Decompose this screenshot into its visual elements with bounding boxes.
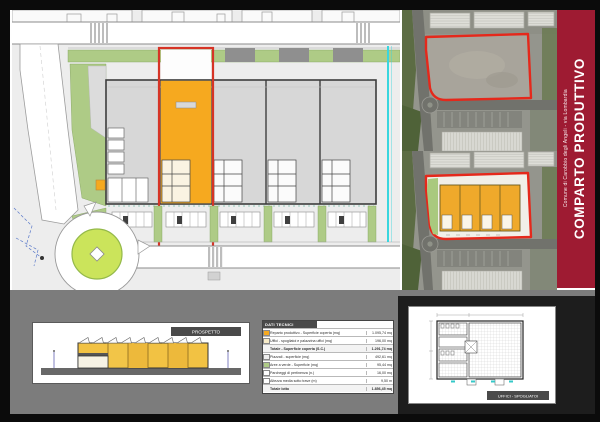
elevation-label: PROSPETTO xyxy=(192,330,221,335)
banner-title: COMPARTO PRODUTTIVO xyxy=(570,58,590,239)
ground-slab xyxy=(41,368,241,375)
vacant-lot xyxy=(426,34,531,100)
loading-aprons xyxy=(225,48,363,62)
sawtooth-roof xyxy=(79,338,202,344)
stair-core xyxy=(465,341,477,353)
swatch-verde xyxy=(263,362,270,368)
title-banner: Comune di Carobbio degli Angeli - via Lo… xyxy=(557,10,595,288)
row-label: Totale - Superficie coperta (S.C.) xyxy=(270,347,366,351)
light-pole-right-icon xyxy=(227,350,229,368)
row-value: 1.856,45 mq xyxy=(366,387,393,391)
elevation-card: PROSPETTO xyxy=(32,322,250,384)
swatch-none xyxy=(263,346,270,352)
project-building xyxy=(440,185,520,231)
row-value: 1.291,74 mq xyxy=(366,347,393,351)
swatch-piazzali xyxy=(263,354,270,360)
sheet-page: Comune di Carobbio degli Angeli - via Lo… xyxy=(10,10,595,414)
site-plan-drawing xyxy=(12,10,400,290)
building-elevation xyxy=(78,338,208,369)
site-data-table: DATI TECNICI Reparto produttivo - Superf… xyxy=(262,320,394,394)
row-value: 196,00 mq xyxy=(366,339,393,343)
unit-tag xyxy=(176,102,196,108)
table-row: Piazzali - superficie (mq) 492,61 mq xyxy=(263,352,393,360)
plan-walls xyxy=(437,321,523,385)
table-header: DATI TECNICI xyxy=(263,321,317,328)
row-label: Altezza media sotto trave (m) xyxy=(270,379,366,383)
table-row: Uffici - spogliatoi e palazzina uffici (… xyxy=(263,336,393,344)
row-label: Uffici - spogliatoi e palazzina uffici (… xyxy=(270,339,366,343)
project-lot xyxy=(426,173,531,239)
swatch-altezza xyxy=(263,378,270,384)
parking-lot xyxy=(437,111,522,128)
floorplan-card: UFFICI - SPOGLIATOI xyxy=(408,306,556,404)
swatch-none xyxy=(263,386,270,392)
south-building xyxy=(442,132,522,151)
existing-buildings-north xyxy=(12,10,400,22)
aerial-photo-project xyxy=(402,151,557,290)
swatch-parcheggi xyxy=(263,370,270,376)
row-value: 492,61 mq xyxy=(366,355,393,359)
annex-elevation xyxy=(78,353,108,368)
aerial-photo-existing xyxy=(402,10,557,151)
parking-lot xyxy=(437,250,522,267)
swatch-produttivo xyxy=(263,330,270,336)
table-row: Altezza media sotto trave (m) 9,50 m xyxy=(263,376,393,384)
row-label: Parcheggi di pertinenza (n.) xyxy=(270,371,366,375)
row-value: 16,00 mq xyxy=(366,371,393,375)
banner-subtitle: Comune di Carobbio degli Angeli - via Lo… xyxy=(562,58,570,239)
elevation-drawing: PROSPETTO xyxy=(33,323,249,383)
light-pole-left-icon xyxy=(53,350,55,368)
table-row: Reparto produttivo - Superficie coperta … xyxy=(263,328,393,336)
industrial-roofs xyxy=(430,152,554,168)
industrial-roofs xyxy=(430,12,554,28)
floor-plan-drawing: UFFICI - SPOGLIATOI xyxy=(409,307,555,403)
row-value: 95,44 mq xyxy=(366,363,393,367)
row-label: Totale lotto xyxy=(270,387,366,391)
row-label: Reparto produttivo - Superficie coperta … xyxy=(270,331,366,335)
row-value: 9,50 m xyxy=(366,379,393,383)
swatch-uffici xyxy=(263,338,270,344)
south-building xyxy=(442,271,522,290)
row-label: Aree a verde - Superficie (mq) xyxy=(270,363,366,367)
table-row: Aree a verde - Superficie (mq) 95,44 mq xyxy=(263,360,393,368)
table-row-total: Totale - Superficie coperta (S.C.) 1.291… xyxy=(263,344,393,352)
row-value: 1.095,74 mq xyxy=(366,331,393,335)
row-label: Piazzali - superficie (mq) xyxy=(270,355,366,359)
floorplan-label: UFFICI - SPOGLIATOI xyxy=(498,393,538,398)
main-road xyxy=(12,22,400,48)
table-row-total: Totale lotto 1.856,45 mq xyxy=(263,384,393,392)
table-row: Parcheggi di pertinenza (n.) 16,00 mq xyxy=(263,368,393,376)
